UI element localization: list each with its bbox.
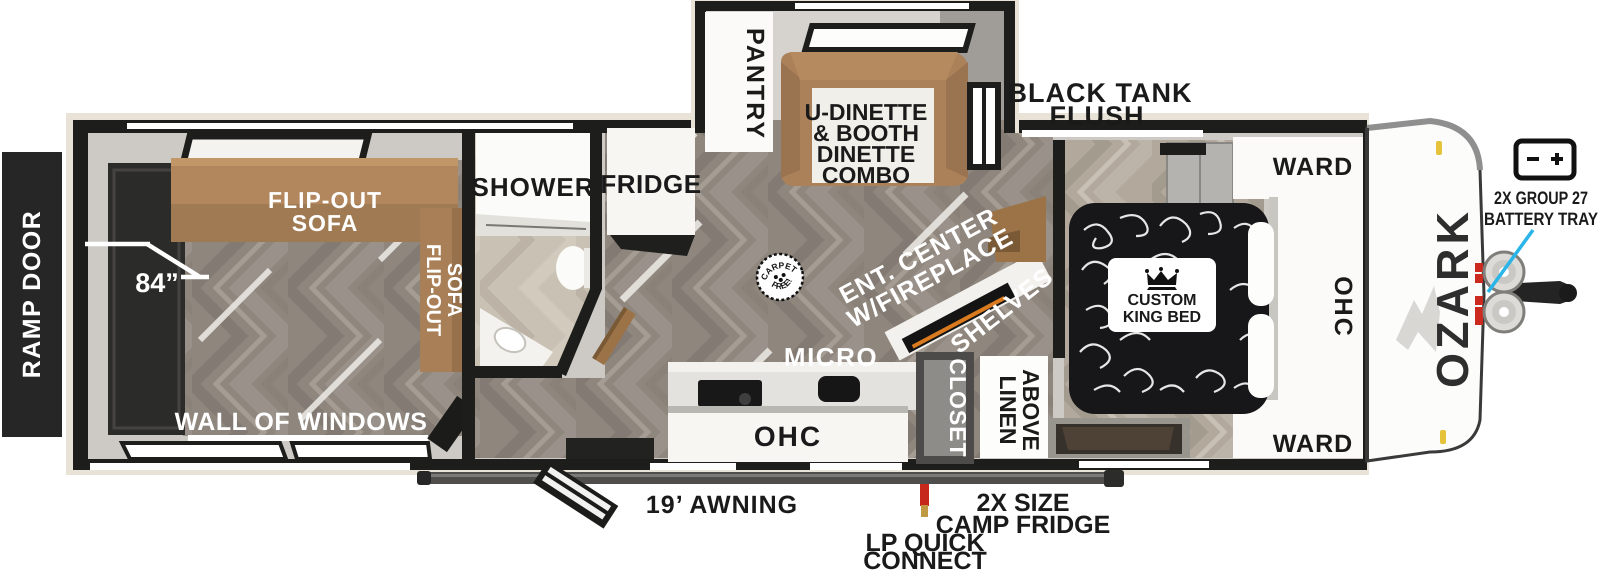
svg-text:ABOVE: ABOVE bbox=[1018, 369, 1044, 451]
svg-text:CAMP FRIDGE: CAMP FRIDGE bbox=[936, 511, 1111, 539]
svg-text:COMBO: COMBO bbox=[822, 162, 910, 188]
svg-text:FLIP-OUT: FLIP-OUT bbox=[422, 244, 444, 336]
svg-text:LINEN: LINEN bbox=[995, 376, 1021, 445]
svg-text:WARD: WARD bbox=[1273, 153, 1353, 181]
svg-text:MICRO: MICRO bbox=[784, 342, 878, 372]
svg-text:OHC: OHC bbox=[754, 421, 822, 452]
svg-text:WARD: WARD bbox=[1273, 430, 1353, 458]
svg-text:FRIDGE: FRIDGE bbox=[600, 169, 701, 199]
svg-text:84”: 84” bbox=[135, 268, 179, 298]
svg-text:SOFA: SOFA bbox=[292, 210, 359, 236]
svg-text:CLOSET: CLOSET bbox=[945, 358, 971, 457]
svg-text:SHOWER: SHOWER bbox=[472, 172, 595, 202]
svg-text:OHC: OHC bbox=[1329, 276, 1357, 338]
svg-text:19’ AWNING: 19’ AWNING bbox=[646, 491, 798, 519]
svg-text:RAMP DOOR: RAMP DOOR bbox=[18, 210, 46, 379]
svg-text:CONNECT: CONNECT bbox=[863, 547, 987, 571]
svg-text:2X GROUP 27: 2X GROUP 27 bbox=[1494, 188, 1588, 208]
svg-text:BATTERY TRAY: BATTERY TRAY bbox=[1484, 209, 1598, 229]
svg-text:PANTRY: PANTRY bbox=[741, 28, 769, 140]
svg-text:SOFA: SOFA bbox=[443, 263, 465, 317]
svg-text:KING BED: KING BED bbox=[1123, 309, 1201, 326]
svg-text:CUSTOM: CUSTOM bbox=[1127, 292, 1196, 309]
svg-text:FLUSH: FLUSH bbox=[1050, 101, 1145, 131]
svg-text:OZARK: OZARK bbox=[1427, 208, 1478, 388]
svg-text:WALL OF WINDOWS: WALL OF WINDOWS bbox=[175, 408, 428, 436]
